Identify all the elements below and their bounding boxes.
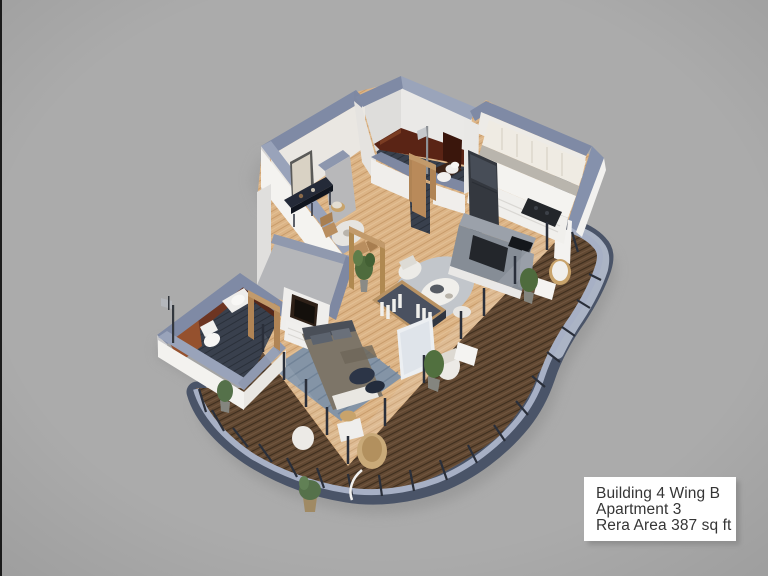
svg-text:Apartment 3: Apartment 3 [596, 501, 682, 518]
svg-text:Building 4 Wing B: Building 4 Wing B [596, 485, 720, 502]
svg-text:Rera Area 387 sq ft: Rera Area 387 sq ft [596, 517, 732, 534]
